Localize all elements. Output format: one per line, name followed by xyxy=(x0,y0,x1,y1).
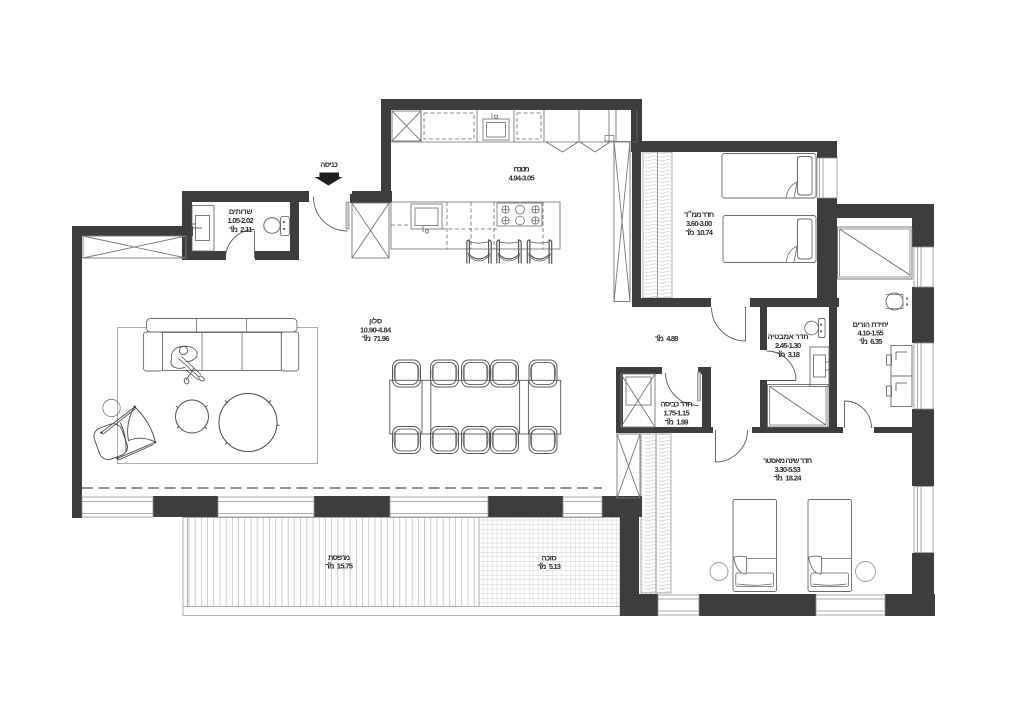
svg-text:2.45-1.30: 2.45-1.30 xyxy=(775,341,801,350)
svg-text:4.94-3.05: 4.94-3.05 xyxy=(509,174,536,183)
svg-text:חדר כביסה: חדר כביסה xyxy=(661,400,693,409)
svg-text:1.99: 1.99 xyxy=(676,418,688,427)
svg-text:מ״ר: מ״ר xyxy=(685,228,694,237)
svg-text:מ״ר: מ״ר xyxy=(859,337,868,346)
svg-text:חדר אמבטיה: חדר אמבטיה xyxy=(768,332,809,341)
svg-text:6.35: 6.35 xyxy=(870,337,883,346)
svg-text:מ״ר: מ״ר xyxy=(537,562,546,571)
svg-text:מ״ר: מ״ר xyxy=(362,334,371,343)
svg-text:1.05-2.02: 1.05-2.02 xyxy=(228,216,254,225)
svg-text:10.74: 10.74 xyxy=(697,228,714,237)
svg-text:מטבח: מטבח xyxy=(514,165,530,174)
svg-text:15.75: 15.75 xyxy=(337,562,354,571)
svg-text:71.96: 71.96 xyxy=(373,334,389,343)
svg-text:מ״ר: מ״ר xyxy=(774,474,783,483)
svg-text:חדר שינה מאסטר: חדר שינה מאסטר xyxy=(763,456,812,465)
svg-text:18.24: 18.24 xyxy=(785,474,802,483)
svg-text:1.75-1.15: 1.75-1.15 xyxy=(664,409,691,418)
svg-text:חדר ממ״ד: חדר ממ״ד xyxy=(684,210,714,219)
svg-text:2.11: 2.11 xyxy=(240,225,253,234)
svg-text:מ״ר: מ״ר xyxy=(325,562,334,571)
svg-text:סלון: סלון xyxy=(369,317,382,326)
svg-text:5.13: 5.13 xyxy=(549,562,561,571)
svg-text:3.60-3.00: 3.60-3.00 xyxy=(686,219,712,228)
svg-text:מ״ר: מ״ר xyxy=(665,418,674,427)
svg-text:מ״ר: מ״ר xyxy=(229,225,238,234)
svg-text:מ״ר: מ״ר xyxy=(776,350,785,359)
svg-text:3.18: 3.18 xyxy=(788,350,800,359)
svg-text:4.88: 4.88 xyxy=(666,334,678,343)
svg-text:שרותים: שרותים xyxy=(229,207,253,216)
svg-text:כניסה: כניסה xyxy=(320,160,338,169)
svg-text:מ״ר: מ״ר xyxy=(655,334,664,343)
